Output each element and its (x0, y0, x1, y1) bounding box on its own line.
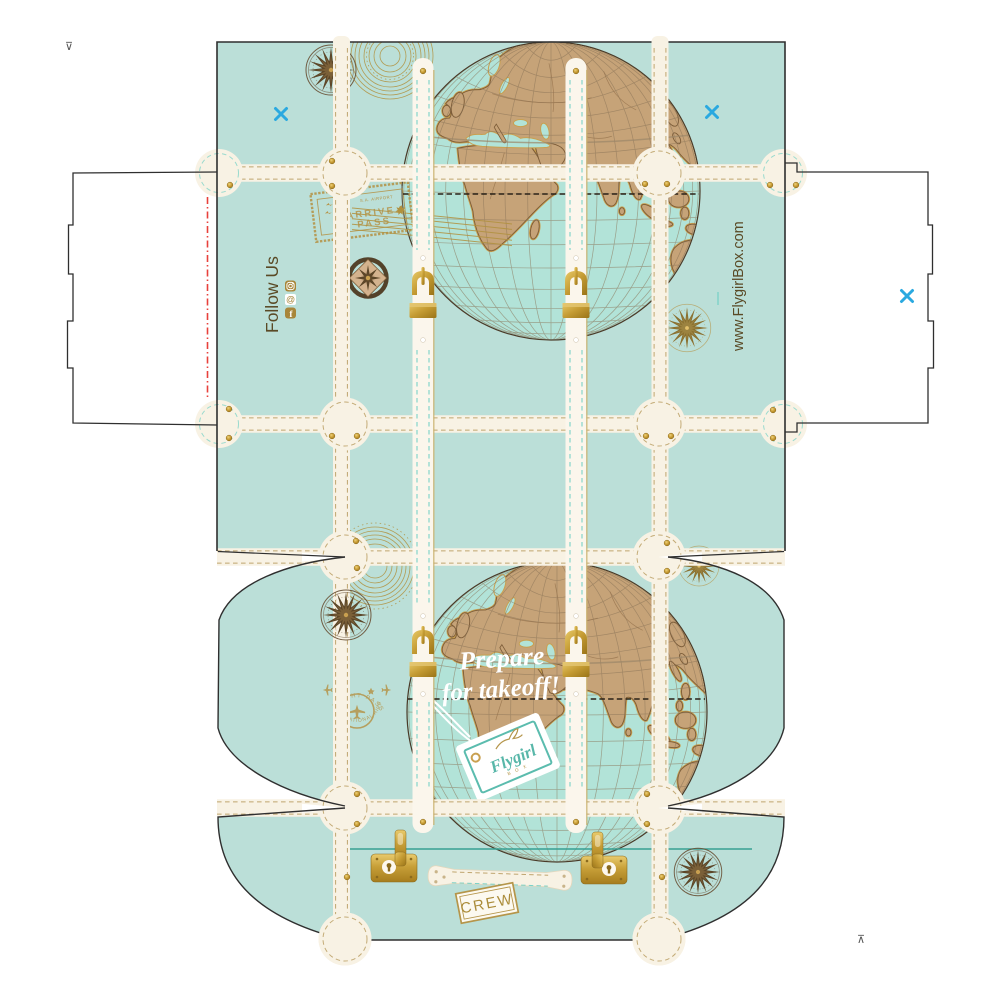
svg-text:⊽: ⊽ (65, 41, 73, 53)
svg-text:www.FlygirlBox.com: www.FlygirlBox.com (731, 221, 747, 352)
svg-text:Prepare: Prepare (457, 641, 545, 676)
svg-text:⊼: ⊼ (857, 934, 865, 946)
svg-text:Follow Us: Follow Us (262, 256, 282, 333)
svg-text:@: @ (286, 295, 295, 305)
